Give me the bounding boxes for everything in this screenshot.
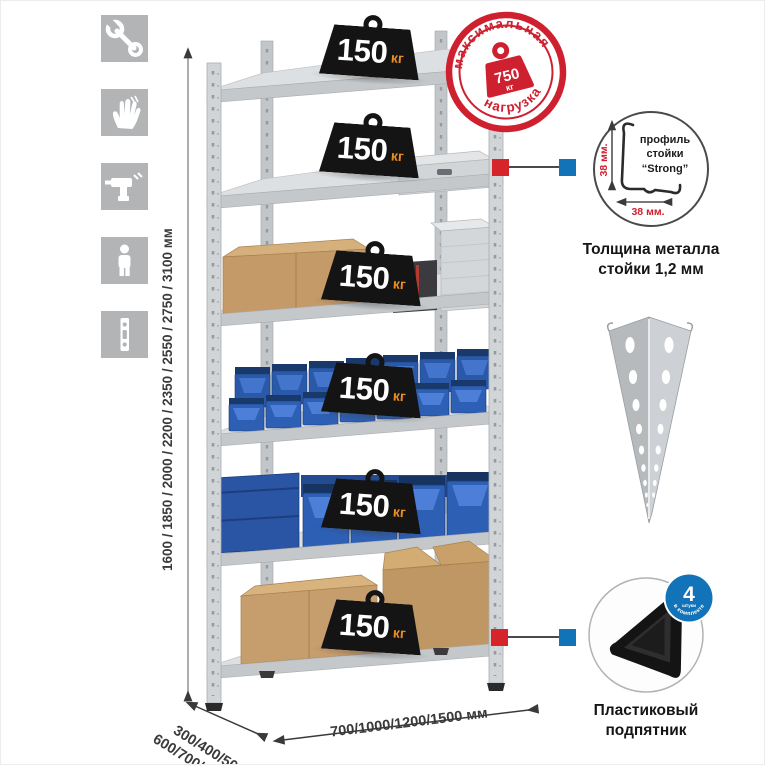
blue-crate <box>215 473 299 553</box>
max-load-stamp: максимальная нагрузка 750 кг <box>437 3 575 141</box>
load-unit: кг <box>392 387 406 404</box>
shelf-load-weight-1: 150кг <box>319 12 423 81</box>
height-dimension-label: 1600 / 1850 / 2000 / 2200 / 2350 / 2550 … <box>160 207 175 571</box>
shelf-load-weight-6: 150кг <box>321 587 425 656</box>
callout-marker-red-bottom <box>491 629 508 646</box>
profile-label-2: стойки <box>646 148 683 160</box>
profile-label-3: “Strong” <box>642 163 688 175</box>
profile-label-1: профиль <box>640 134 690 146</box>
callout-marker-blue-top <box>559 159 576 176</box>
callout-marker-blue-bottom <box>559 629 576 646</box>
callout-marker-red-top <box>492 159 509 176</box>
rack-foot <box>433 648 449 655</box>
load-unit: кг <box>392 503 406 520</box>
badge-sub-text: штуки <box>682 603 696 608</box>
load-unit: кг <box>392 275 406 292</box>
profile-dim-horizontal: 38 мм. <box>631 206 664 218</box>
profile-detail-circle: 38 мм. 38 мм. профиль стойки “Strong” <box>594 112 708 226</box>
load-unit: кг <box>390 147 404 164</box>
load-unit: кг <box>392 624 406 641</box>
load-value: 150 <box>338 370 391 409</box>
load-unit: кг <box>390 49 404 66</box>
load-value: 150 <box>336 130 389 169</box>
corner-post-image <box>608 317 693 523</box>
shelf-load-weight-2: 150кг <box>319 110 423 179</box>
rack-foot <box>259 671 275 678</box>
quantity-badge: 4 штуки в комплекте <box>664 573 715 624</box>
product-infographic: максимальная нагрузка 750 кг 38 мм. 38 м… <box>0 0 765 765</box>
load-value: 150 <box>338 607 391 646</box>
load-value: 150 <box>338 486 391 525</box>
load-value: 150 <box>338 258 391 297</box>
profile-dim-vertical: 38 мм. <box>598 143 610 176</box>
rack-foot <box>487 683 505 691</box>
rack-foot <box>205 703 223 711</box>
shelf-load-weight-5: 150кг <box>321 466 425 535</box>
shelf-load-weight-4: 150кг <box>321 350 425 419</box>
shelf-load-weight-3: 150кг <box>321 238 425 307</box>
depth-dimension-arrow <box>195 706 265 737</box>
load-value: 150 <box>336 32 389 71</box>
